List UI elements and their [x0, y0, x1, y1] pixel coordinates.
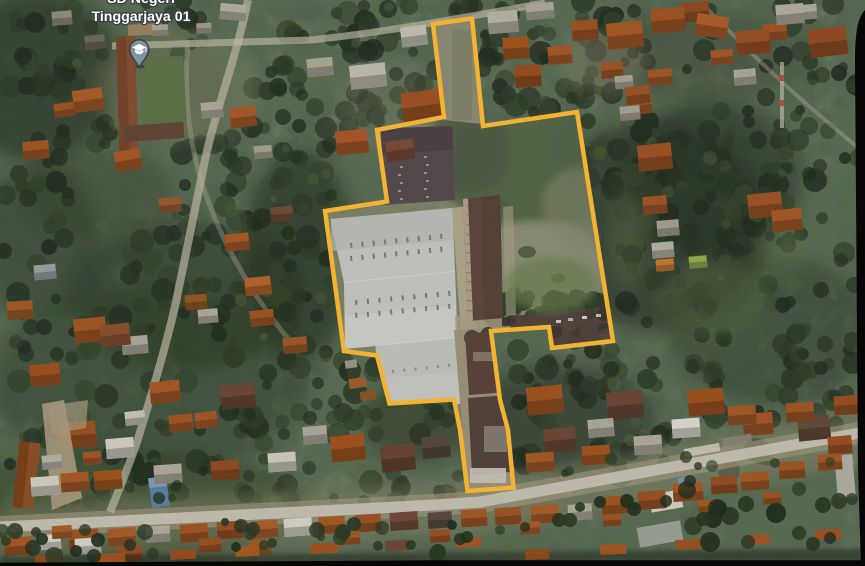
svg-text:Tinggarjaya 01: Tinggarjaya 01 [91, 9, 190, 25]
svg-text:SD Negeri: SD Negeri [107, 0, 175, 7]
